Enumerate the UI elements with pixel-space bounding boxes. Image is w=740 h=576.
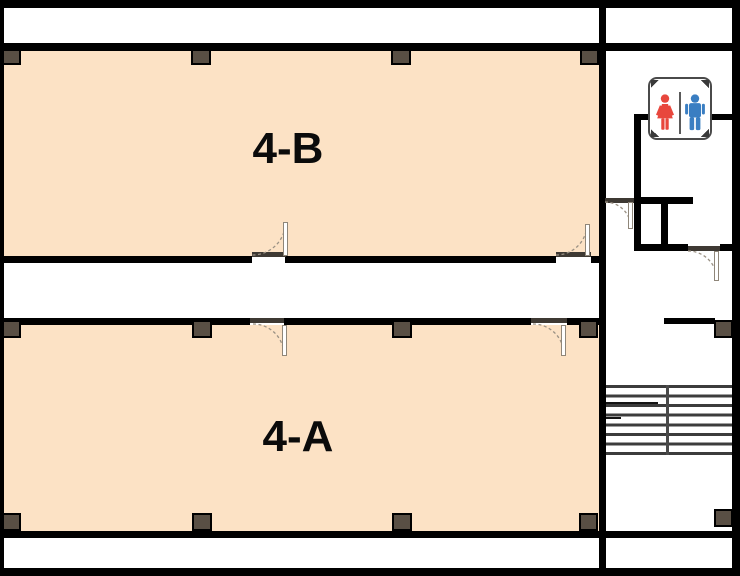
room-4a-label: 4-A [223, 412, 373, 462]
stairs-break-line [606, 402, 658, 404]
column [714, 320, 733, 338]
column [714, 509, 733, 527]
wall-stairwell-top [664, 318, 715, 324]
outer-wall-bottom [0, 568, 740, 576]
wall-restroom-left [634, 114, 641, 251]
floor-plan: 4-B 4-A [0, 0, 740, 576]
wall-room4b-bottom-seg [285, 256, 556, 263]
door-leaf [585, 224, 590, 256]
column [579, 320, 598, 338]
wall-room4b-bottom-seg [0, 256, 252, 263]
wall-restroom-stall-h [641, 197, 693, 204]
door-leaf [282, 325, 287, 356]
door-threshold [252, 252, 286, 257]
stairs-center-line [666, 385, 669, 455]
door-leaf [628, 202, 633, 229]
door-leaf [283, 222, 288, 256]
outer-wall-right [732, 0, 740, 576]
room-4b-label: 4-B [213, 124, 363, 174]
column [391, 49, 411, 65]
wall-room4a-bottom [0, 531, 740, 538]
column [192, 513, 212, 531]
door-threshold [531, 318, 567, 323]
sign-corner-mark [651, 80, 659, 88]
door-leaf [561, 325, 566, 356]
column [392, 513, 412, 531]
wall-room4b-top [0, 43, 740, 51]
column [580, 49, 599, 65]
wall-restroom-bottom-seg [720, 244, 732, 251]
wall-room4a-top-seg [0, 318, 250, 325]
column [2, 320, 21, 338]
wall-corridor-vertical [599, 0, 606, 576]
stairs [606, 385, 732, 455]
male-figure-icon [683, 90, 707, 136]
door-threshold [250, 318, 284, 323]
outer-wall-top [0, 0, 740, 8]
door-swing-arc [688, 251, 717, 280]
wall-restroom-bottom-seg [634, 244, 688, 251]
female-figure-icon [653, 90, 677, 136]
column [2, 513, 21, 531]
column [579, 513, 598, 531]
sign-corner-mark [701, 80, 709, 88]
door-leaf [714, 251, 719, 281]
column [2, 49, 21, 65]
column [191, 49, 211, 65]
restroom-sign [648, 77, 712, 140]
column [192, 320, 212, 338]
stairs-break-line [606, 417, 621, 419]
outer-wall-left [0, 0, 4, 576]
column [392, 320, 412, 338]
sign-divider [679, 92, 681, 134]
